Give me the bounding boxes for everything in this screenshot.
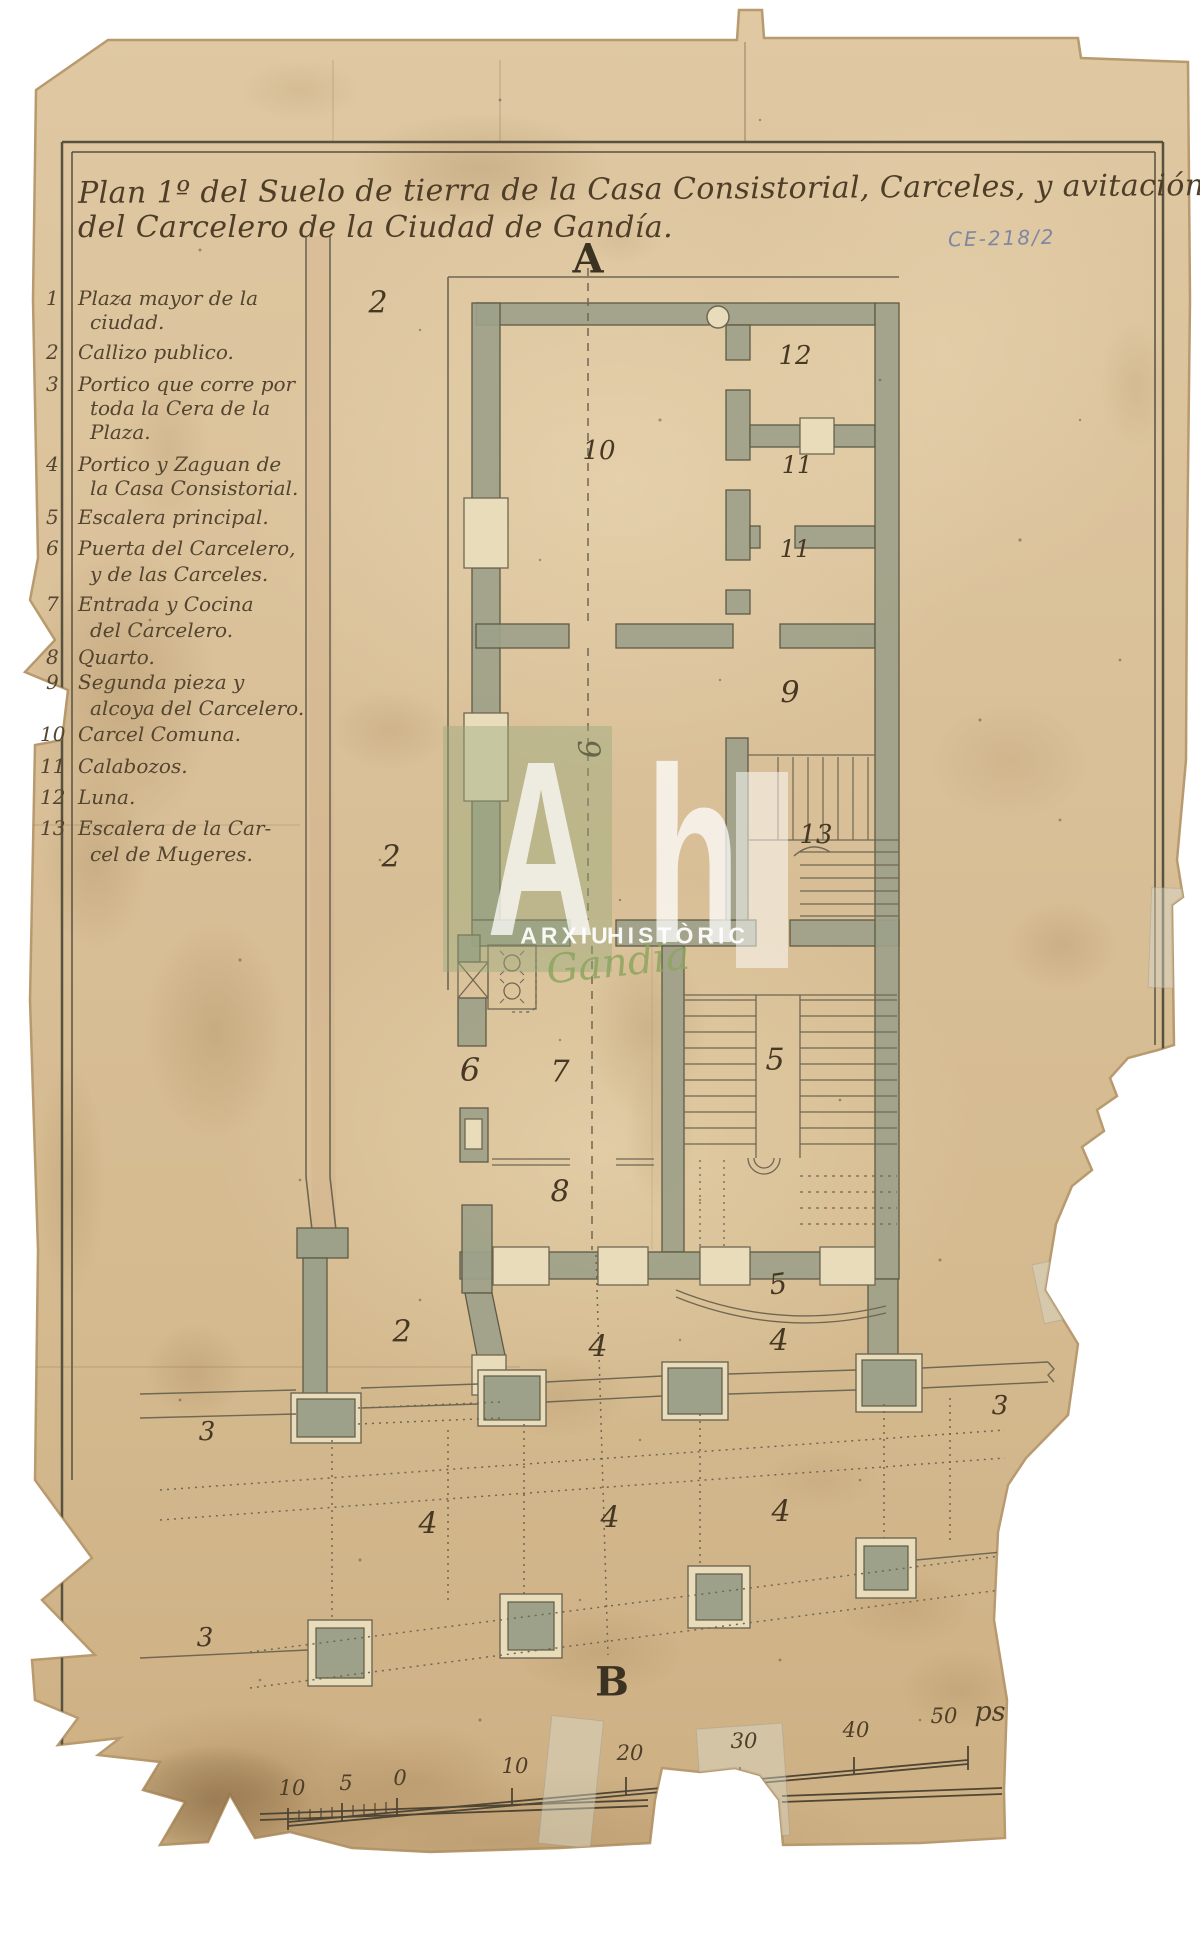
legend-item-number: 5 [46,505,59,529]
room-number-label: 6 [460,1051,480,1089]
room-number-label: 4 [771,1495,790,1530]
legend-item-text: ciudad. [90,310,164,334]
legend-item-text: Escalera de la Car- [78,816,271,840]
section-marker-label: B [595,1659,629,1706]
scale-tick-label: 10 [279,1776,306,1800]
legend-item-text: Plaza. [90,420,151,444]
room-number-label: 13 [799,820,832,850]
legend-item-text: cel de Mugeres. [90,842,253,866]
room-number-label: 2 [368,286,387,321]
legend-item-text: y de las Carceles. [90,562,268,586]
legend-item-text: del Carcelero. [90,618,233,642]
scanned-document: Plan 1º del Suelo de tierra de la Casa C… [0,0,1200,1936]
legend-item-text: Quarto. [78,645,155,669]
legend-item-text: toda la Cera de la [90,396,270,420]
room-number-label: 2 [392,1315,411,1350]
legend-item-text: Puerta del Carcelero, [78,536,295,560]
room-number-label: 12 [778,341,811,371]
scale-tick-label: 20 [617,1741,644,1765]
legend-item-number: 2 [46,340,59,364]
legend-item-text: Portico y Zaguan de [78,452,281,476]
legend-item-number: 11 [40,754,65,778]
legend-item-text: Callizo publico. [78,340,234,364]
legend-item-number: 3 [46,372,59,396]
room-number-label: 3 [992,1391,1009,1421]
legend-item-text: la Casa Consistorial. [90,476,298,500]
legend-item-text: Entrada y Cocina [78,592,254,616]
legend-item-number: 7 [46,592,59,616]
legend-item-text: Calabozos. [78,754,188,778]
room-number-label: 9 [570,738,607,760]
legend-item-text: Plaza mayor de la [78,286,258,310]
archive-reference-number: CE-218/2 [948,225,1056,252]
legend-item-text: Portico que corre por [78,372,295,396]
room-number-label: 4 [418,1507,437,1542]
legend-item-number: 10 [40,722,65,746]
scale-tick-label: 30 [731,1729,758,1753]
legend-item-text: Segunda pieza y [78,670,244,694]
legend-item-text: Luna. [78,785,135,809]
scale-tick-label: ps [974,1697,1005,1728]
legend-item-text: Carcel Comuna. [78,722,241,746]
legend-item-number: 4 [46,452,59,476]
room-number-label: 10 [582,436,615,466]
room-number-label: 11 [782,451,813,479]
room-number-label: 8 [550,1175,569,1210]
room-number-label: 7 [550,1055,569,1090]
legend-item-number: 8 [46,645,59,669]
scale-tick-label: 5 [339,1771,352,1795]
room-number-label: 11 [780,535,811,563]
room-number-label: 2 [381,840,400,875]
room-number-label: 3 [197,1623,214,1653]
room-number-label: 4 [600,1501,619,1536]
scale-tick-label: 0 [393,1766,406,1790]
legend-item-number: 6 [46,536,59,560]
room-number-label: 5 [765,1043,784,1078]
legend-item-text: Escalera principal. [78,505,269,529]
section-marker-label: A [572,236,603,283]
scale-tick-label: 50 [931,1704,958,1728]
room-number-label: 4 [588,1330,607,1365]
legend-item-number: 1 [46,286,59,310]
legend-item-text: alcoya del Carcelero. [90,696,304,720]
legend-item-number: 9 [46,670,59,694]
room-number-label: 9 [780,676,799,711]
legend-item-number: 13 [40,816,65,840]
room-number-label: 4 [769,1324,788,1359]
scale-tick-label: 40 [843,1718,870,1742]
scale-tick-label: 10 [502,1754,529,1778]
room-number-label: 3 [199,1417,216,1447]
legend-item-number: 12 [40,785,65,809]
